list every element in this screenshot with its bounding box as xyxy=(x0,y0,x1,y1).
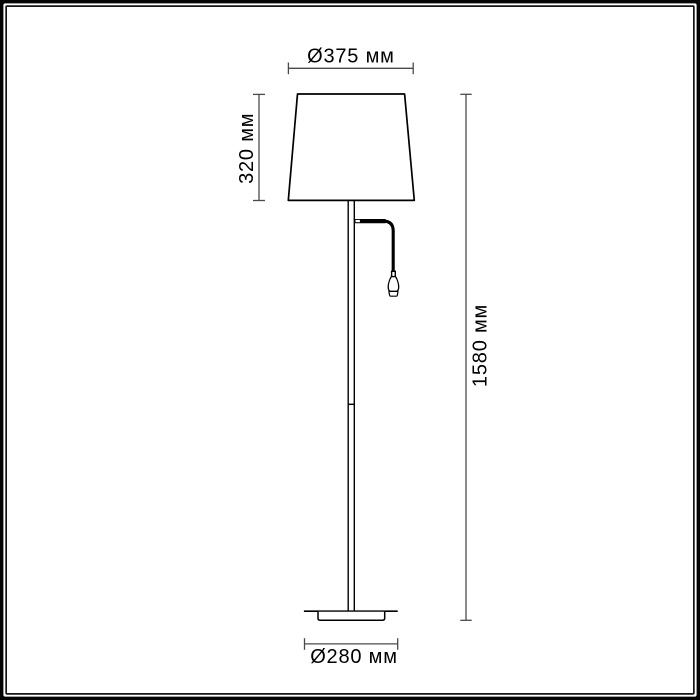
svg-text:Ø280 мм: Ø280 мм xyxy=(310,646,398,668)
svg-text:320 мм: 320 мм xyxy=(236,113,258,184)
svg-text:Ø375 мм: Ø375 мм xyxy=(307,46,395,68)
svg-text:1580 мм: 1580 мм xyxy=(470,304,492,387)
